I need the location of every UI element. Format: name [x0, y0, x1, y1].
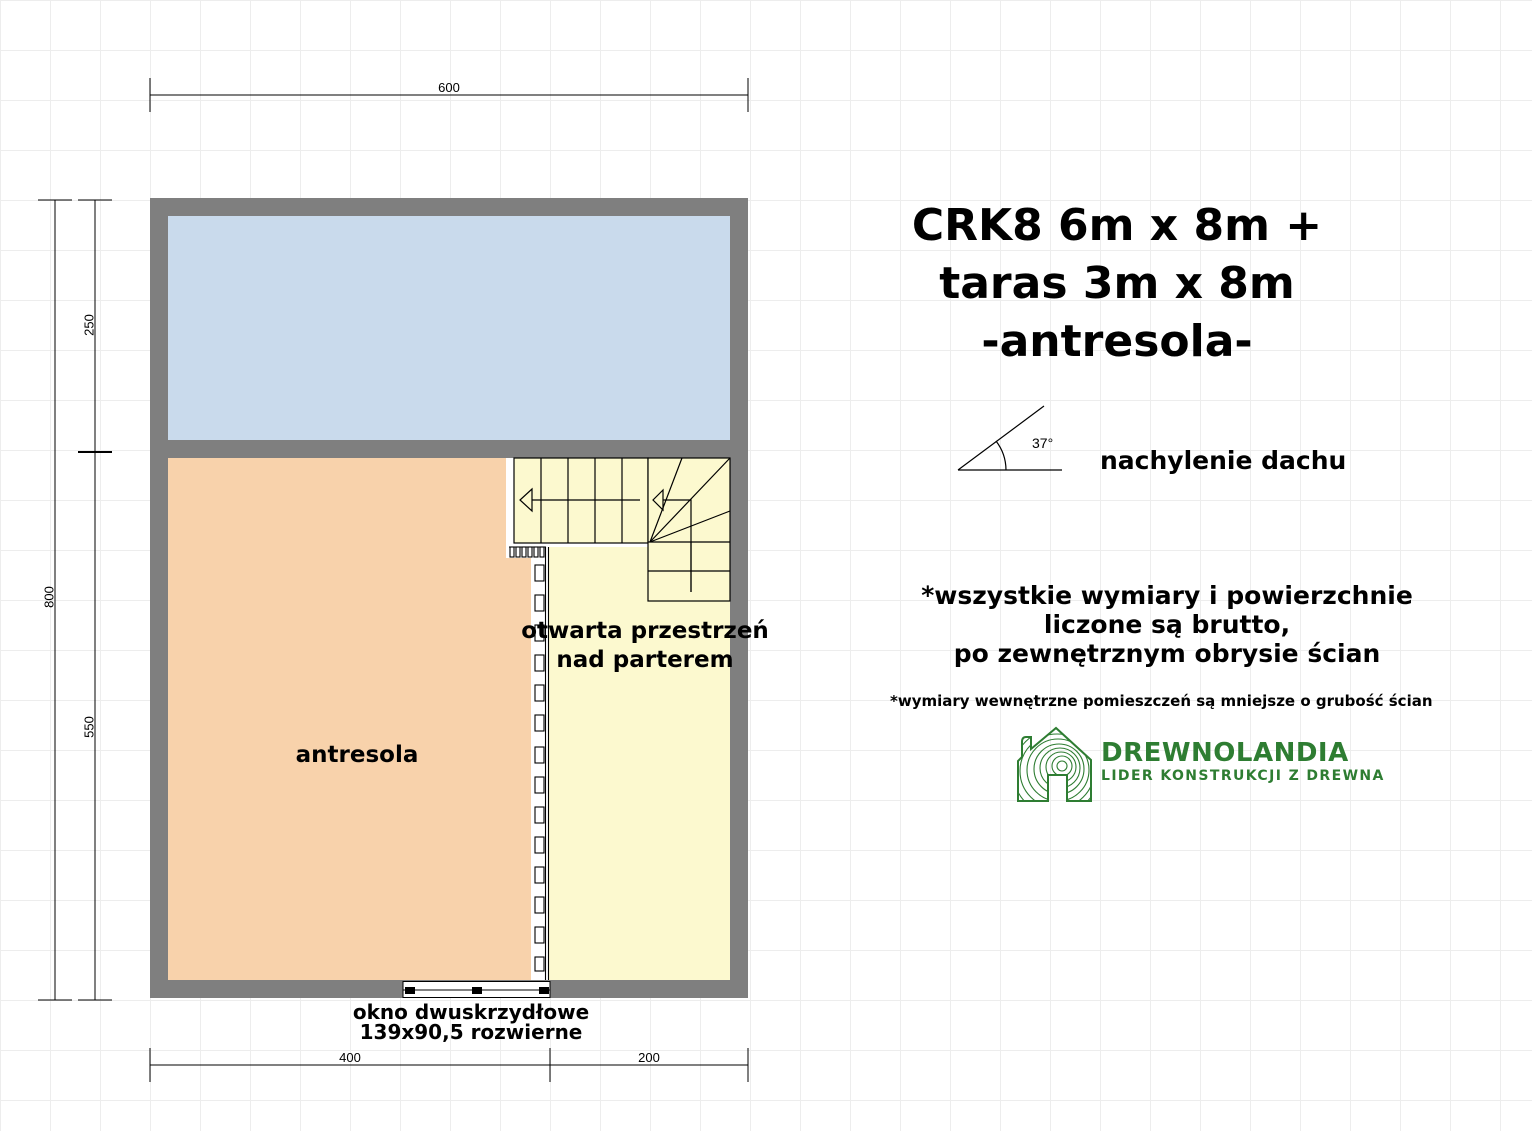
window-symbol — [403, 982, 550, 998]
logo-text: DREWNOLANDIA LIDER KONSTRUKCJI Z DREWNA — [1101, 740, 1385, 784]
roof-angle-value: 37° — [1032, 435, 1053, 451]
interior-dimensions-note: *wymiary wewnętrzne pomieszczeń są mniej… — [890, 692, 1390, 710]
antresola-label: antresola — [257, 742, 457, 768]
open-space-floor — [549, 547, 730, 980]
drewnolandia-house-icon — [997, 717, 1111, 831]
dimension-left-lower-value: 550 — [82, 716, 97, 738]
upper-room-floor — [168, 216, 730, 440]
open-space-label-line1: otwarta przestrzeń — [495, 617, 795, 646]
dimensions-note-line1: *wszystkie wymiary i powierzchnie — [917, 581, 1417, 610]
dimensions-note-line3: po zewnętrznym obrysie ścian — [917, 639, 1417, 668]
dimension-bottom-left-value: 400 — [330, 1050, 370, 1065]
stair-winder — [648, 458, 730, 601]
antresola-floor — [168, 458, 531, 980]
open-space-label: otwarta przestrzeń nad parterem — [495, 617, 795, 675]
roof-pitch-label: nachylenie dachu — [1100, 446, 1320, 475]
roof-pitch-icon: 37° — [958, 406, 1062, 470]
dimension-left-upper-value: 250 — [82, 314, 97, 336]
plan-title-line1: CRK8 6m x 8m + — [857, 197, 1377, 255]
stair-landing-hatch — [509, 547, 546, 557]
floor-plan-drawing: 37° — [0, 0, 1532, 1131]
logo-brand-name: DREWNOLANDIA — [1101, 740, 1385, 766]
dimension-top-value: 600 — [429, 80, 469, 95]
plan-title-line2: taras 3m x 8m — [857, 255, 1377, 313]
window-label: okno dwuskrzydłowe 139x90,5 rozwierne — [331, 1002, 611, 1042]
floor-plan-canvas: 37° 600 800 — [0, 0, 1532, 1131]
window-label-line2: 139x90,5 rozwierne — [331, 1022, 611, 1042]
floor-plan — [150, 198, 748, 998]
open-space-label-line2: nad parterem — [495, 646, 795, 675]
dimension-left-total-value: 800 — [42, 586, 57, 608]
dimensions-note: *wszystkie wymiary i powierzchnie liczon… — [917, 581, 1417, 668]
dimension-bottom-right-value: 200 — [629, 1050, 669, 1065]
logo-tagline: LIDER KONSTRUKCJI Z DREWNA — [1101, 769, 1385, 784]
plan-title-line3: -antresola- — [857, 313, 1377, 371]
plan-title: CRK8 6m x 8m + taras 3m x 8m -antresola- — [857, 197, 1377, 371]
dimensions-note-line2: liczone są brutto, — [917, 610, 1417, 639]
window-label-line1: okno dwuskrzydłowe — [331, 1002, 611, 1022]
